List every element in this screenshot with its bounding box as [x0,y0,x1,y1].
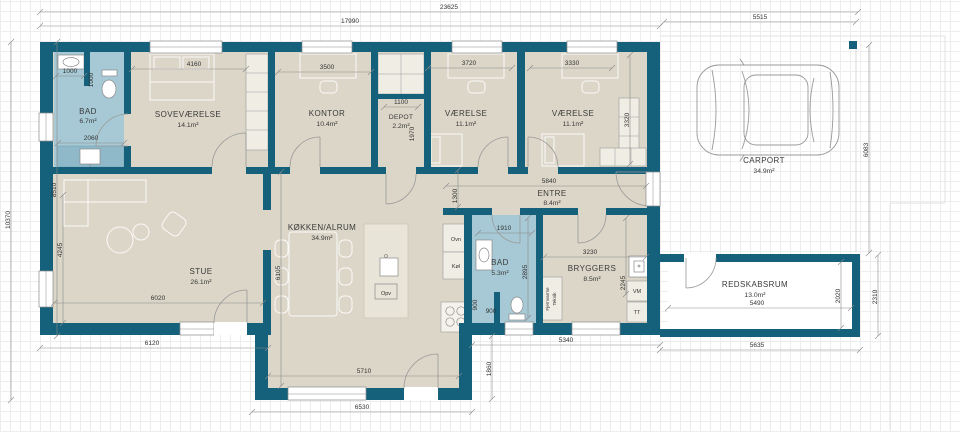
dim-carport-width: 5515 [753,14,768,21]
carport-area [660,36,945,430]
shower-fixture [80,149,100,164]
door-kokken-terrace [404,387,438,400]
dim-bad1-shower-w: 2060 [84,135,99,142]
carport-post [849,41,857,49]
svg-text:13.0m²: 13.0m² [744,292,766,299]
dim-house-depth: 8510 [51,182,58,197]
floor-plan-svg: 23625 17990 5515 10370 8510 4245 6020 61… [0,0,960,432]
property-line [660,36,945,430]
dim-vaerelse1-w: 3720 [462,60,477,67]
sink-bad1 [58,55,84,69]
room-label-stue: STUE [190,267,213,276]
dim-total-width: 23625 [440,4,458,11]
label-dryer: TT [634,310,641,316]
label-dishwasher: Opv [381,291,391,297]
window-stue-south [180,322,214,335]
dim-stue-h: 4245 [57,242,64,257]
dim-bad2-niche-h: 900 [472,299,479,310]
svg-text:10.4m²: 10.4m² [316,121,338,128]
dim-vaerelse2-w: 3330 [565,60,580,67]
room-label-bryggers: BRYGGERS [568,264,616,273]
svg-text:2.2m²: 2.2m² [392,123,410,130]
sink-bad2 [476,240,492,270]
dim-sovevaerelse-w: 4160 [187,61,202,68]
room-label-depot: DEPOT [389,114,413,121]
dim-kokken-ext: 1860 [486,361,493,376]
dim-depot-w: 1100 [394,99,408,106]
dim-bryggers-h: 2245 [620,275,627,290]
dim-bryggers-w: 3230 [583,249,598,256]
svg-text:8.5m²: 8.5m² [583,276,601,283]
dim-house-width: 17990 [341,18,359,25]
label-fridge: Køl [452,264,460,270]
closet-entre [600,148,646,166]
dim-bad1-niche-h: 1000 [88,72,95,87]
dim-bad2-niche-w: 900 [486,308,497,315]
dim-hall-opening: 1300 [452,188,459,203]
dim-kokken-out-w: 6530 [355,404,370,411]
dim-bad2-w: 1910 [497,225,512,232]
room-label-vaerelse2: VÆRELSE [552,109,594,118]
label-oven: Ovn [451,237,461,243]
window-kokken-south [288,387,366,400]
toilet-bad2 [509,314,525,320]
svg-text:34.9m²: 34.9m² [753,168,775,175]
toilet-bad1 [102,70,117,76]
room-label-vaerelse1: VÆRELSE [445,109,487,118]
door-redskabsrum-opening [684,253,716,262]
svg-text:11.1m²: 11.1m² [563,121,584,128]
island-sink [380,258,398,276]
label-utilities: Teknik [552,292,557,306]
room-label-carport: CARPORT [743,156,785,165]
dim-redskab-h: 2020 [835,288,842,303]
svg-text:6.7m²: 6.7m² [79,118,97,125]
window-bad2 [505,322,533,335]
dim-bad1-niche-w: 1000 [63,68,78,75]
dim-stue-out-w: 6120 [145,340,160,347]
wardrobe-sovevaerelse [246,54,268,150]
dim-depot-h: 1970 [409,126,416,141]
kitchen-extension-floor [267,335,460,388]
dim-redskab-out-h: 2310 [872,289,879,304]
dim-kokken-h: 6105 [275,265,282,280]
dim-carport-depth: 6083 [863,142,870,157]
label-washing-machine: VM [633,289,642,295]
window-bryggers [572,322,620,335]
room-label-redskabsrum: REDSKABSRUM [722,280,788,289]
dim-entre-w: 5840 [542,178,557,185]
room-label-bad1: BAD [79,107,97,116]
room-label-sovevaerelse: SOVEVÆRELSE [155,110,221,119]
dim-bad2-h: 2895 [522,264,529,279]
dim-kokken-w: 5710 [357,368,372,375]
svg-text:34.9m²: 34.9m² [311,235,333,242]
dim-vaerelse2-h: 3320 [624,112,631,127]
svg-text:8.4m²: 8.4m² [543,200,561,207]
floors [52,52,852,388]
room-label-bad2: BAD [491,258,509,267]
svg-text:5.3m²: 5.3m² [491,270,509,277]
dim-kontor-w: 3500 [320,64,335,71]
car-top-view [697,59,839,161]
dim-redskab-out-w: 5635 [750,342,765,349]
dim-south-mid-w: 5340 [559,337,574,344]
room-label-kontor: KONTOR [309,109,345,118]
svg-text:11.1m²: 11.1m² [456,121,477,128]
svg-text:26.1m²: 26.1m² [190,279,212,286]
door-stue-terrace [214,322,247,335]
room-label-entre: ENTRE [537,189,566,198]
dim-total-depth: 10370 [5,211,12,229]
dim-stue-w: 6020 [151,295,166,302]
room-label-kokken: KØKKEN/ALRUM [288,223,356,232]
svg-text:14.1m²: 14.1m² [177,122,199,129]
dim-redskab-w: 5490 [750,300,765,307]
label-district-heating: Fjernvarme [545,287,550,311]
